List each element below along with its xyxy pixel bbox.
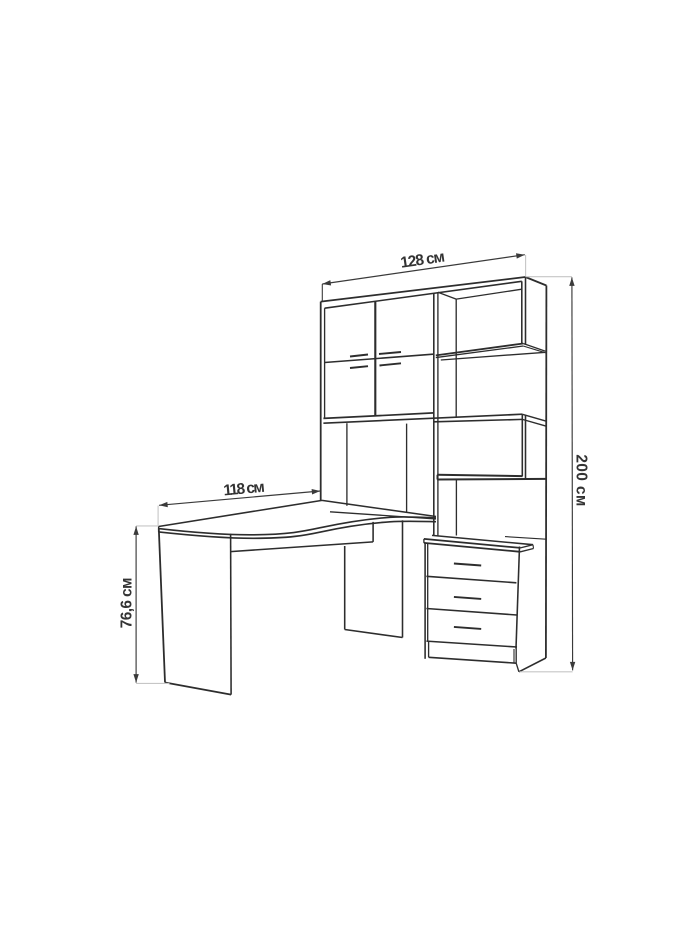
svg-text:200 см: 200 см [573,454,590,506]
svg-text:76,6 см: 76,6 см [118,578,135,628]
